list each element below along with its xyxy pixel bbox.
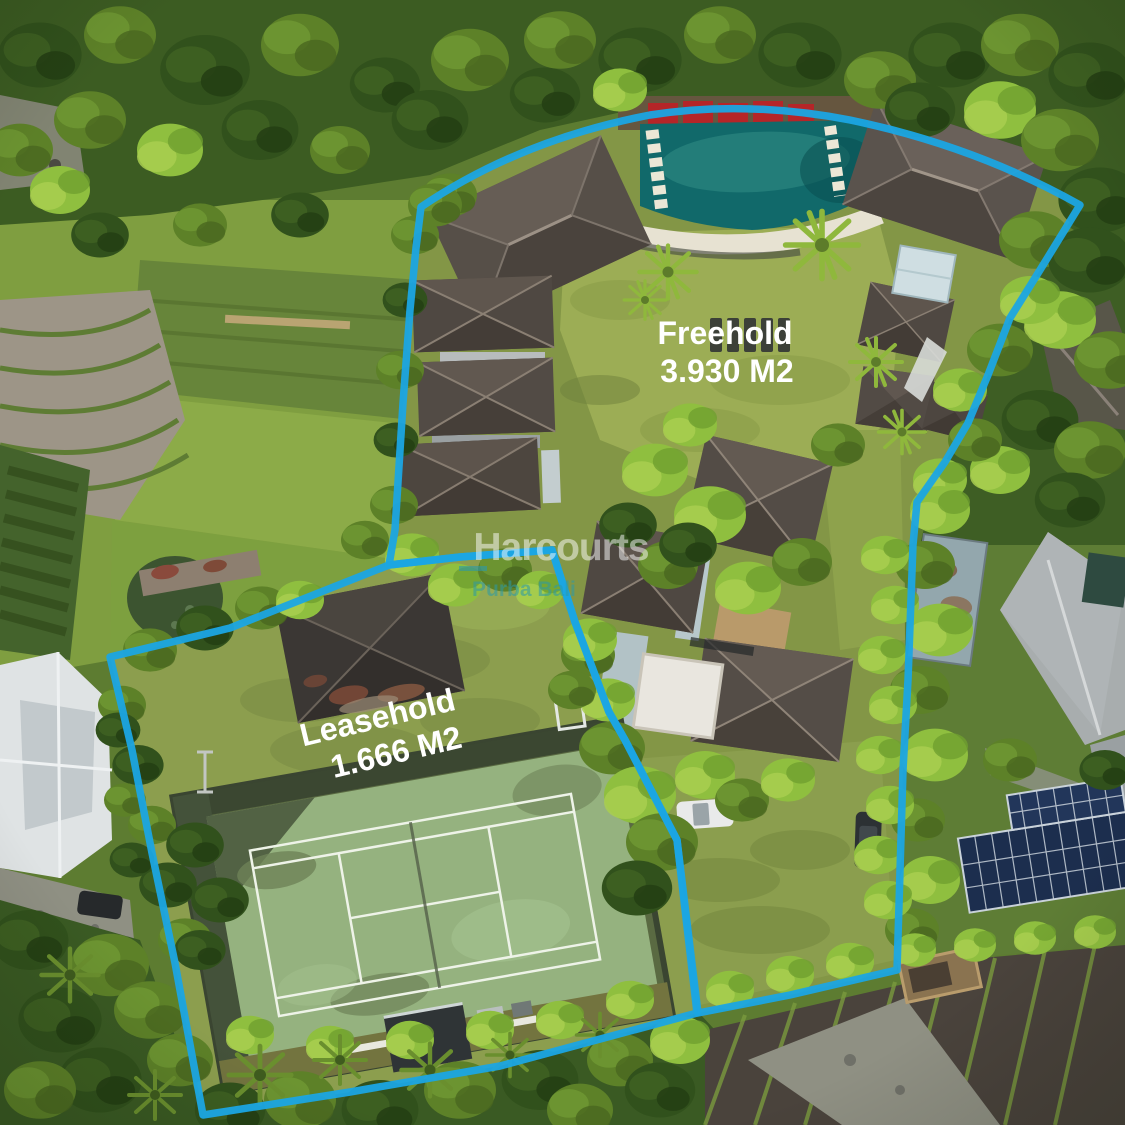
watermark-brand: Harcourts <box>473 526 649 569</box>
watermark-swoosh <box>459 566 487 571</box>
scene: Harcourts Purba Bali Freehold 3.930 M2 L… <box>0 0 1125 1125</box>
watermark-subtitle: Purba Bali <box>472 578 576 601</box>
aerial-property-photo: Harcourts Purba Bali Freehold 3.930 M2 L… <box>0 0 1125 1125</box>
freehold-area-label: 3.930 M2 <box>660 353 793 389</box>
freehold-label: Freehold <box>657 315 792 351</box>
